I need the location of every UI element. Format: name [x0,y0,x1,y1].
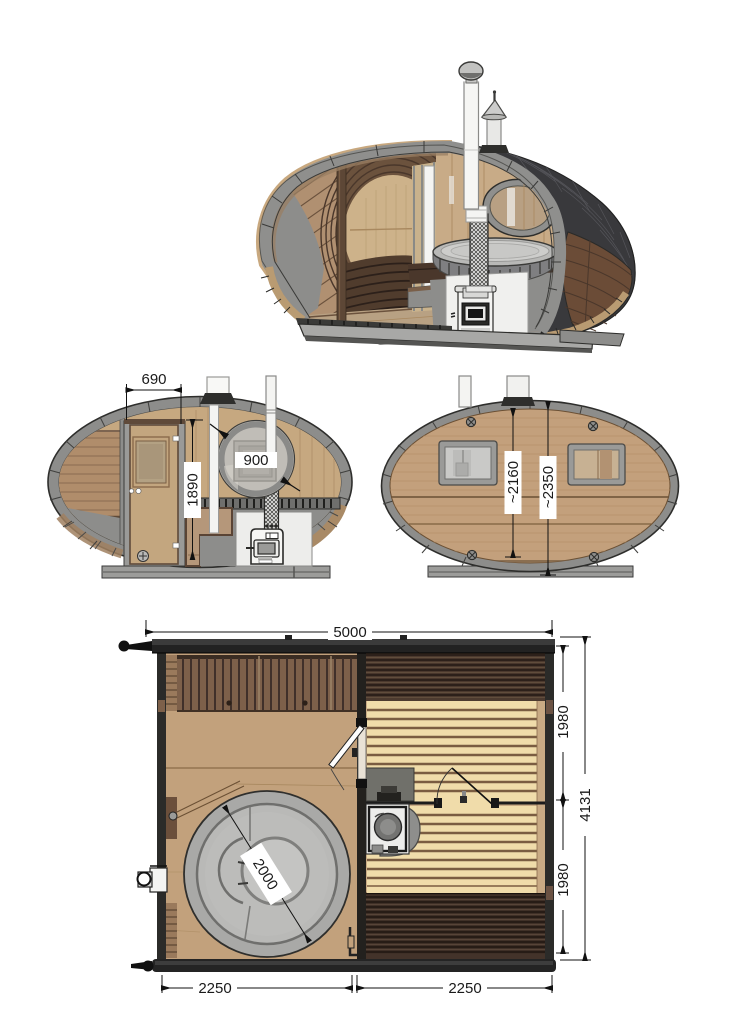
svg-text:4131: 4131 [577,788,594,821]
svg-text:1980: 1980 [555,705,572,738]
svg-text:~2160: ~2160 [505,461,522,503]
svg-text:1980: 1980 [555,863,572,896]
svg-text:~2350: ~2350 [540,466,557,508]
svg-text:1890: 1890 [185,473,202,506]
svg-text:900: 900 [243,452,268,469]
svg-text:2250: 2250 [198,980,231,997]
svg-text:690: 690 [141,371,166,388]
svg-text:5000: 5000 [333,624,366,641]
svg-text:2250: 2250 [448,980,481,997]
